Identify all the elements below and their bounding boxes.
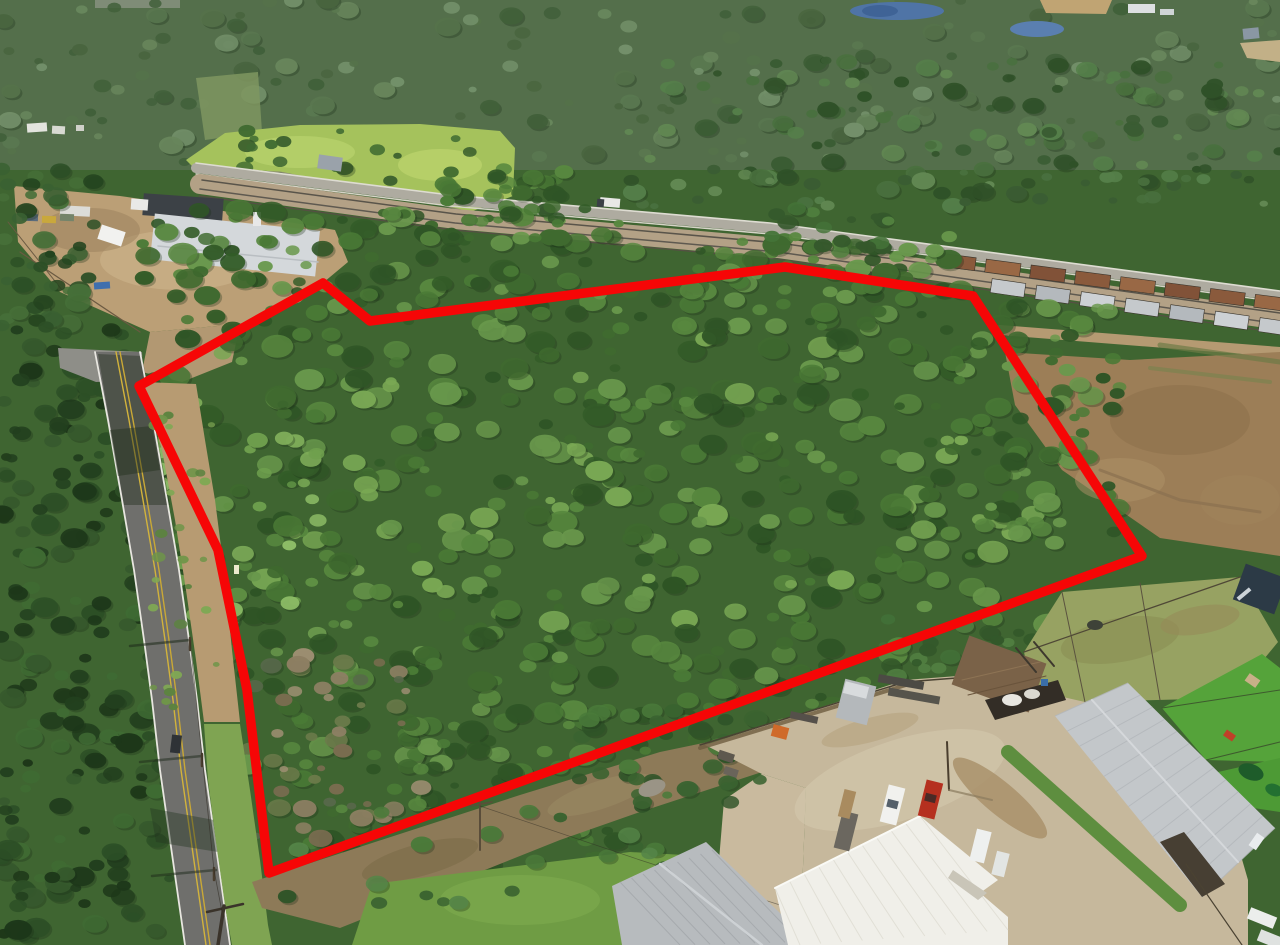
distant-forest-texture: [725, 154, 737, 163]
house-roof-3: [76, 125, 84, 131]
forest-canopy-2: [612, 306, 623, 314]
forest-band-above-corridor: [1233, 111, 1246, 120]
forest-canopy-3: [839, 471, 858, 485]
forest-canopy-1: [578, 257, 592, 267]
forest-canopy-5: [534, 702, 563, 723]
forest-near-yard: [931, 663, 946, 674]
pine-forest-west-3: [15, 728, 43, 748]
forest-canopy-3: [730, 454, 743, 463]
forest-canopy-4: [545, 497, 555, 504]
forest-band-above-corridor: [882, 145, 905, 162]
dead-trees-patch: [275, 694, 292, 706]
pine-forest-west-1: [6, 454, 18, 462]
distant-forest-texture: [736, 137, 746, 144]
forest-canopy-6: [413, 763, 429, 774]
forest-upper-left-pocket: [50, 163, 70, 178]
trees-yard-west: [579, 712, 600, 727]
dead-trees-patch: [335, 716, 351, 727]
forest-east-boundary: [975, 518, 994, 532]
forest-east-boundary: [1076, 428, 1089, 438]
pine-forest-west-3: [66, 773, 81, 784]
forest-band-above-corridor: [1021, 178, 1035, 188]
forest-canopy-3: [539, 347, 560, 362]
forest-canopy-6: [366, 764, 381, 774]
trees-yard-west: [721, 796, 739, 809]
trees-yard-west: [620, 709, 640, 723]
forest-canopy-2: [727, 318, 750, 335]
pine-forest-west-3: [6, 826, 27, 841]
forest-band-above-corridor: [765, 177, 774, 184]
shoulder-scrub: [200, 557, 207, 562]
dead-trees-patch: [357, 702, 366, 708]
forest-band-above-corridor: [812, 142, 823, 150]
pine-forest-west-1: [102, 323, 121, 336]
pine-forest-west-1: [12, 480, 32, 495]
dead-trees-patch: [353, 674, 369, 685]
pine-forest-west-3: [102, 843, 126, 860]
forest-band-above-corridor: [806, 110, 817, 118]
forest-band-above-corridor: [713, 70, 722, 76]
forest-canopy-6: [336, 804, 348, 813]
forest-canopy-3: [829, 398, 861, 421]
forest-band-above-corridor: [663, 81, 684, 96]
forest-band-above-corridor: [1081, 180, 1090, 187]
forest-band-above-corridor: [1202, 150, 1211, 156]
pasture-trees: [246, 143, 258, 151]
forest-band-above-corridor: [1076, 62, 1098, 78]
forest-east-boundary: [1006, 298, 1028, 313]
forest-canopy-3: [298, 479, 310, 488]
forest-canopy-4: [917, 601, 933, 612]
forest-canopy-2: [677, 320, 692, 331]
forest-clump-corridor-west: [440, 196, 455, 207]
pine-forest-west-2: [31, 597, 59, 617]
forest-east-boundary: [1015, 517, 1027, 525]
forest-canopy-4: [779, 478, 800, 493]
shoulder-scrub: [169, 704, 178, 711]
scattered-trees-south: [519, 805, 538, 819]
distant-forest-texture: [72, 44, 88, 55]
pine-forest-west-2: [54, 670, 68, 680]
forest-canopy-3: [752, 439, 781, 460]
forest-canopy-3: [391, 425, 418, 444]
distant-forest-texture: [321, 69, 333, 78]
forest-canopy-3: [585, 461, 613, 481]
shoulder-scrub: [213, 662, 220, 667]
distant-forest-texture: [227, 19, 245, 32]
distant-forest-texture: [798, 9, 823, 27]
forest-canopy-2: [634, 312, 647, 322]
forest-canopy-3: [795, 440, 814, 454]
forest-canopy-2: [898, 243, 917, 257]
pine-forest-west-2: [119, 618, 137, 631]
forest-canopy-1: [135, 247, 160, 265]
pine-forest-west-1: [56, 384, 78, 400]
forest-canopy-4: [524, 506, 550, 525]
pine-forest-west-3: [23, 759, 33, 767]
forest-band-above-corridor: [1144, 191, 1161, 203]
pasture-trees: [451, 135, 461, 142]
forest-band-above-corridor: [974, 162, 994, 177]
distant-forest-texture: [135, 70, 149, 80]
distant-forest-texture: [711, 97, 721, 104]
forest-band-above-corridor: [697, 81, 711, 91]
forest-canopy-1: [441, 243, 460, 257]
forest-canopy-1: [292, 328, 311, 342]
forest-canopy-1: [225, 200, 253, 220]
forest-canopy-2: [620, 243, 645, 261]
pine-forest-west-3: [9, 899, 27, 912]
forest-band-above-corridor: [960, 170, 968, 176]
forest-canopy-5: [711, 646, 724, 656]
forest-canopy-4: [692, 516, 708, 527]
distant-forest-texture: [1007, 45, 1026, 59]
distant-forest-texture: [455, 112, 466, 120]
forest-canopy-5: [417, 738, 441, 755]
dead-trees-patch: [306, 732, 318, 741]
forest-band-above-corridor: [670, 179, 686, 191]
pasture-trees: [336, 128, 344, 134]
forest-canopy-2: [811, 303, 838, 322]
forest-canopy-4: [918, 487, 939, 502]
distant-forest-texture: [849, 107, 857, 113]
pine-forest-west-3: [54, 835, 66, 843]
dead-trees-patch: [314, 682, 332, 695]
forest-canopy-3: [343, 455, 366, 472]
forest-band-above-corridor: [857, 91, 872, 102]
forest-canopy-3: [500, 358, 528, 378]
pine-forest-west-3: [22, 771, 40, 784]
forest-canopy-3: [476, 421, 500, 438]
forest-canopy-4: [778, 595, 806, 615]
forest-band-above-corridor: [1235, 86, 1249, 96]
forest-band-above-corridor: [764, 78, 786, 94]
distant-forest-texture: [1267, 30, 1277, 37]
forest-canopy-4: [759, 514, 779, 529]
dead-trees-patch: [386, 699, 406, 713]
forest-canopy-1: [168, 243, 197, 264]
distant-forest-texture: [527, 81, 542, 92]
forest-canopy-4: [452, 521, 464, 529]
forest-canopy-2: [776, 299, 791, 309]
forest-upper-left-pocket: [38, 321, 54, 332]
pine-forest-west-3: [136, 773, 147, 781]
forest-canopy-4: [1002, 491, 1019, 503]
forest-canopy-2: [765, 318, 787, 334]
forest-canopy-3: [501, 393, 519, 406]
forest-band-above-corridor: [916, 59, 940, 76]
forest-canopy-4: [940, 526, 959, 540]
pine-forest-west-2: [8, 586, 28, 600]
pine-forest-west-3: [49, 798, 72, 814]
forest-canopy-5: [364, 636, 379, 647]
pine-forest-west-1: [31, 514, 59, 534]
forest-canopy-3: [699, 435, 726, 454]
forest-canopy-1: [281, 218, 304, 234]
forest-band-above-corridor: [992, 96, 1014, 112]
pine-forest-west-2: [79, 654, 91, 663]
pine-forest-west-2: [92, 596, 112, 610]
forest-band-above-corridor: [912, 172, 936, 189]
forest-canopy-2: [778, 285, 791, 295]
forest-canopy-3: [295, 369, 324, 390]
pine-forest-west-1: [80, 463, 102, 479]
pine-forest-west-1: [72, 483, 97, 501]
pine-forest-west-3: [0, 767, 14, 777]
forest-band-above-corridor: [821, 201, 835, 211]
distant-forest-texture: [970, 31, 985, 42]
trees-yard-west: [619, 759, 640, 774]
distant-forest-texture: [20, 111, 32, 119]
dead-trees-patch: [350, 810, 374, 827]
pine-forest-west-2: [79, 733, 96, 745]
forest-east-boundary: [1034, 497, 1044, 504]
forest-clump-corridor-mid: [816, 222, 832, 234]
distant-forest-texture: [994, 150, 1012, 163]
forest-canopy-5: [776, 637, 793, 649]
forest-canopy-5: [262, 678, 283, 693]
forest-canopy-2: [612, 322, 629, 334]
forest-canopy-2: [651, 292, 670, 306]
forest-canopy-3: [725, 383, 755, 404]
forest-east-boundary: [1091, 304, 1104, 313]
pine-forest-west-2: [88, 615, 102, 625]
forest-canopy-2: [724, 292, 745, 307]
forest-canopy-5: [523, 643, 548, 661]
distant-forest-texture: [155, 33, 170, 44]
distant-forest-texture: [390, 77, 404, 87]
distant-forest-texture: [1186, 113, 1209, 129]
forest-east-boundary: [1069, 377, 1090, 392]
forest-band-above-corridor: [707, 165, 720, 174]
distant-forest-texture: [275, 58, 297, 74]
forest-canopy-4: [527, 491, 539, 500]
scattered-trees-south: [437, 897, 450, 906]
forest-band-above-corridor: [1145, 93, 1163, 106]
pine-forest-west-2: [14, 623, 33, 637]
forest-canopy-3: [896, 452, 924, 472]
forest-canopy-4: [328, 620, 339, 628]
distant-forest-texture: [620, 20, 637, 32]
forest-band-above-corridor: [623, 184, 646, 201]
forest-east-boundary: [1031, 521, 1052, 536]
clearing-top-right: [1040, 0, 1112, 14]
forest-canopy-5: [437, 739, 450, 748]
forest-canopy-4: [927, 572, 950, 588]
forest-upper-left-pocket: [58, 258, 72, 268]
forest-canopy-5: [728, 629, 755, 649]
dead-trees-patch: [293, 800, 317, 817]
forest-band-above-corridor: [1199, 164, 1212, 173]
pasture-trees: [238, 125, 255, 137]
house-roof-2: [52, 126, 65, 135]
forest-canopy-4: [896, 536, 917, 551]
dead-trees-patch: [401, 688, 410, 694]
aerial-scene: [0, 0, 1280, 945]
forest-canopy-2: [823, 286, 838, 297]
forest-band-above-corridor: [1244, 176, 1254, 184]
distant-forest-texture: [66, 116, 79, 125]
forest-band-above-corridor: [624, 175, 640, 186]
forest-canopy-2: [692, 264, 705, 273]
forest-band-above-corridor: [987, 135, 1007, 149]
forest-canopy-3: [797, 382, 828, 404]
forest-band-above-corridor: [1048, 58, 1069, 73]
distant-forest-texture: [1055, 77, 1068, 87]
pine-forest-west-2: [93, 627, 109, 639]
trees-yard-west: [703, 759, 723, 773]
dead-trees-patch: [323, 798, 336, 807]
shoulder-scrub: [155, 529, 167, 538]
pine-forest-west-2: [50, 616, 75, 634]
shoulder-scrub: [166, 490, 174, 496]
forest-canopy-5: [552, 630, 572, 645]
forest-canopy-5: [537, 746, 553, 757]
distant-forest-texture: [515, 27, 531, 38]
forest-canopy-3: [765, 432, 778, 441]
distant-forest-texture: [215, 34, 239, 51]
forest-canopy-4: [340, 620, 352, 629]
distant-forest-texture: [270, 78, 281, 86]
forest-clump-corridor-mid: [768, 208, 785, 220]
forest-east-boundary: [1000, 452, 1025, 470]
forest-canopy-6: [387, 784, 402, 795]
forest-upper-left-pocket: [25, 191, 37, 200]
forest-canopy-3: [945, 444, 961, 455]
pine-forest-west-3: [44, 872, 60, 883]
forest-canopy-4: [859, 583, 881, 599]
forest-canopy-4: [247, 572, 261, 582]
forest-canopy-4: [257, 606, 280, 623]
forest-canopy-4: [622, 531, 641, 545]
distant-forest-texture: [76, 5, 88, 13]
distant-forest-texture: [1168, 90, 1183, 101]
forest-band-above-corridor: [650, 203, 658, 209]
scattered-trees-south: [371, 897, 387, 909]
forest-canopy-4: [625, 593, 651, 612]
distant-forest-texture: [444, 2, 460, 14]
young-trees-light: [257, 468, 272, 479]
forest-canopy-2: [895, 291, 916, 306]
pine-forest-west-3: [107, 866, 128, 881]
forest-canopy-1: [470, 277, 489, 291]
forest-upper-left-pocket: [65, 293, 91, 312]
forest-canopy-4: [957, 483, 977, 497]
forest-upper-left-pocket: [45, 251, 55, 258]
forest-east-boundary: [1012, 412, 1029, 424]
distant-forest-texture: [3, 47, 14, 55]
forest-canopy-4: [267, 566, 284, 578]
young-trees-light: [253, 502, 267, 512]
forest-canopy-3: [914, 362, 940, 380]
forest-clump-corridor-west: [448, 232, 460, 241]
forest-band-above-corridor: [708, 186, 722, 196]
forest-canopy-1: [322, 328, 341, 342]
distant-forest-texture: [720, 10, 732, 19]
young-trees-light: [232, 546, 254, 562]
forest-canopy-2: [941, 231, 957, 242]
forest-canopy-4: [724, 603, 746, 619]
pine-forest-west-3: [110, 736, 122, 744]
forest-band-above-corridor: [876, 181, 899, 198]
forest-upper-left-pocket: [1, 277, 13, 285]
forest-east-boundary: [1008, 525, 1031, 542]
pine-forest-west-3: [89, 860, 105, 871]
trees-yard-west: [718, 714, 734, 725]
forest-clump-corridor-west: [483, 188, 502, 202]
forest-band-above-corridor: [821, 57, 832, 65]
forest-canopy-4: [487, 538, 513, 557]
forest-canopy-3: [702, 327, 726, 345]
forest-canopy-5: [815, 693, 827, 701]
distant-forest-texture: [159, 137, 183, 155]
forest-canopy-1: [415, 250, 436, 265]
distant-forest-texture: [97, 117, 107, 124]
forest-band-above-corridor: [1082, 131, 1098, 142]
pasture-trees: [393, 153, 402, 159]
forest-east-boundary: [1050, 334, 1060, 341]
forest-east-boundary: [1105, 353, 1121, 364]
forest-canopy-3: [493, 474, 512, 488]
forest-band-above-corridor: [894, 77, 909, 88]
pine-forest-west-1: [78, 393, 90, 402]
parked-truck-3: [60, 214, 74, 221]
dead-trees-patch: [260, 658, 281, 673]
dead-trees-patch: [397, 720, 405, 726]
forest-band-above-corridor: [1109, 197, 1118, 203]
dead-trees-patch: [347, 803, 357, 810]
pine-forest-west-1: [53, 468, 71, 481]
forest-canopy-5: [613, 618, 635, 634]
forest-canopy-4: [393, 601, 403, 608]
distant-forest-texture: [1066, 118, 1075, 125]
forest-canopy-1: [501, 325, 525, 343]
forest-canopy-3: [598, 379, 626, 399]
forest-band-above-corridor: [819, 78, 830, 86]
dirt-field-mottle-1: [1110, 385, 1250, 455]
shoulder-scrub: [148, 604, 159, 612]
young-trees-light: [223, 503, 233, 510]
forest-band-above-corridor: [1138, 177, 1150, 186]
forest-canopy-4: [572, 483, 601, 504]
forest-canopy-3: [564, 434, 576, 443]
forest-canopy-1: [491, 235, 513, 251]
forest-band-above-corridor: [1107, 171, 1122, 182]
truck-on-highway-cab: [597, 199, 605, 208]
forest-canopy-3: [924, 437, 938, 447]
forest-band-above-corridor: [625, 129, 634, 135]
pine-forest-west-2: [56, 708, 69, 717]
forest-band-above-corridor: [1041, 173, 1052, 181]
forest-canopy-4: [827, 490, 857, 512]
forest-canopy-4: [811, 594, 825, 604]
shoulder-scrub: [174, 524, 184, 531]
forest-clump-corridor-west: [461, 214, 478, 226]
forest-canopy-1: [206, 310, 225, 324]
forest-canopy-4: [867, 574, 881, 584]
forest-clump-corridor-west: [522, 170, 543, 185]
distant-forest-texture: [1155, 31, 1179, 48]
forest-canopy-4: [605, 487, 632, 506]
forest-canopy-1: [300, 261, 311, 269]
forest-band-above-corridor: [661, 59, 675, 69]
forest-band-above-corridor: [728, 115, 740, 124]
distant-forest-texture: [944, 22, 954, 29]
forest-clump-corridor-mid: [764, 231, 780, 242]
forest-band-above-corridor: [777, 169, 798, 184]
pine-forest-west-2: [70, 597, 82, 606]
forest-canopy-1: [382, 207, 401, 221]
